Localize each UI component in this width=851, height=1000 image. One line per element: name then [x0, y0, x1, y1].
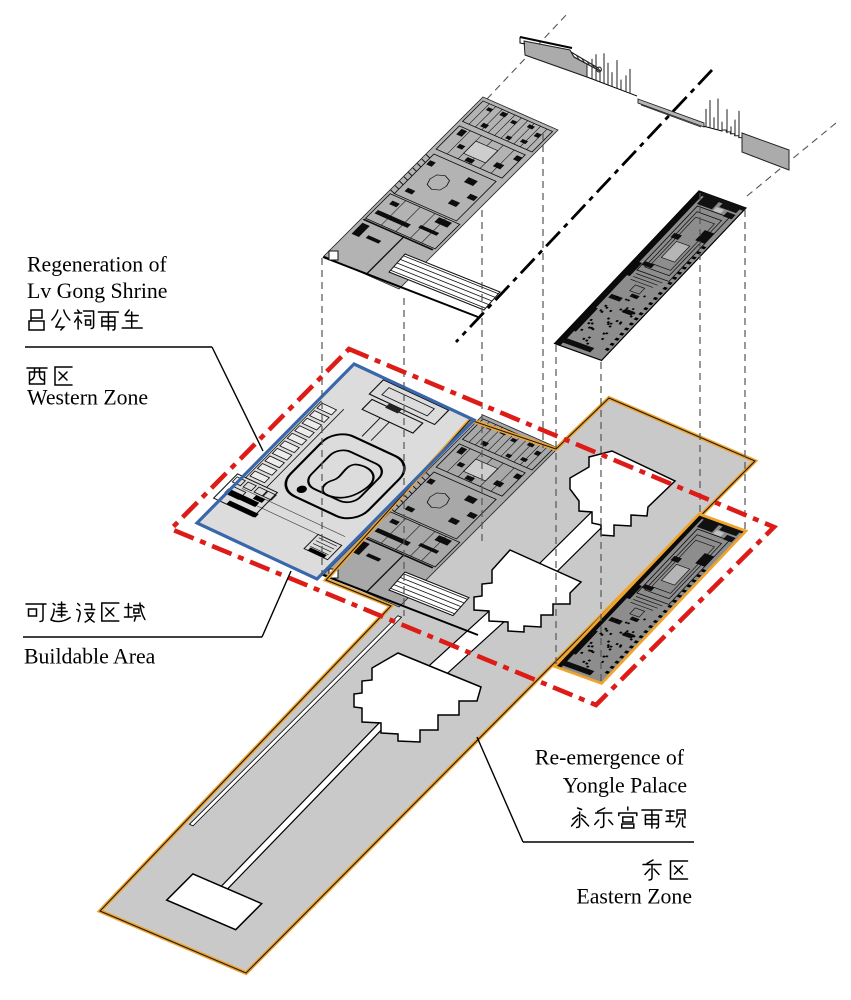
svg-text:Lv Gong Shrine: Lv Gong Shrine: [27, 279, 167, 303]
svg-text:Yongle Palace: Yongle Palace: [563, 774, 687, 798]
svg-text:Regeneration of: Regeneration of: [27, 253, 168, 277]
svg-text:Buildable Area: Buildable Area: [24, 645, 156, 669]
svg-text:Re-emergence of: Re-emergence of: [535, 746, 685, 770]
svg-text:Western Zone: Western Zone: [27, 386, 148, 410]
svg-text:Eastern Zone: Eastern Zone: [576, 885, 692, 909]
